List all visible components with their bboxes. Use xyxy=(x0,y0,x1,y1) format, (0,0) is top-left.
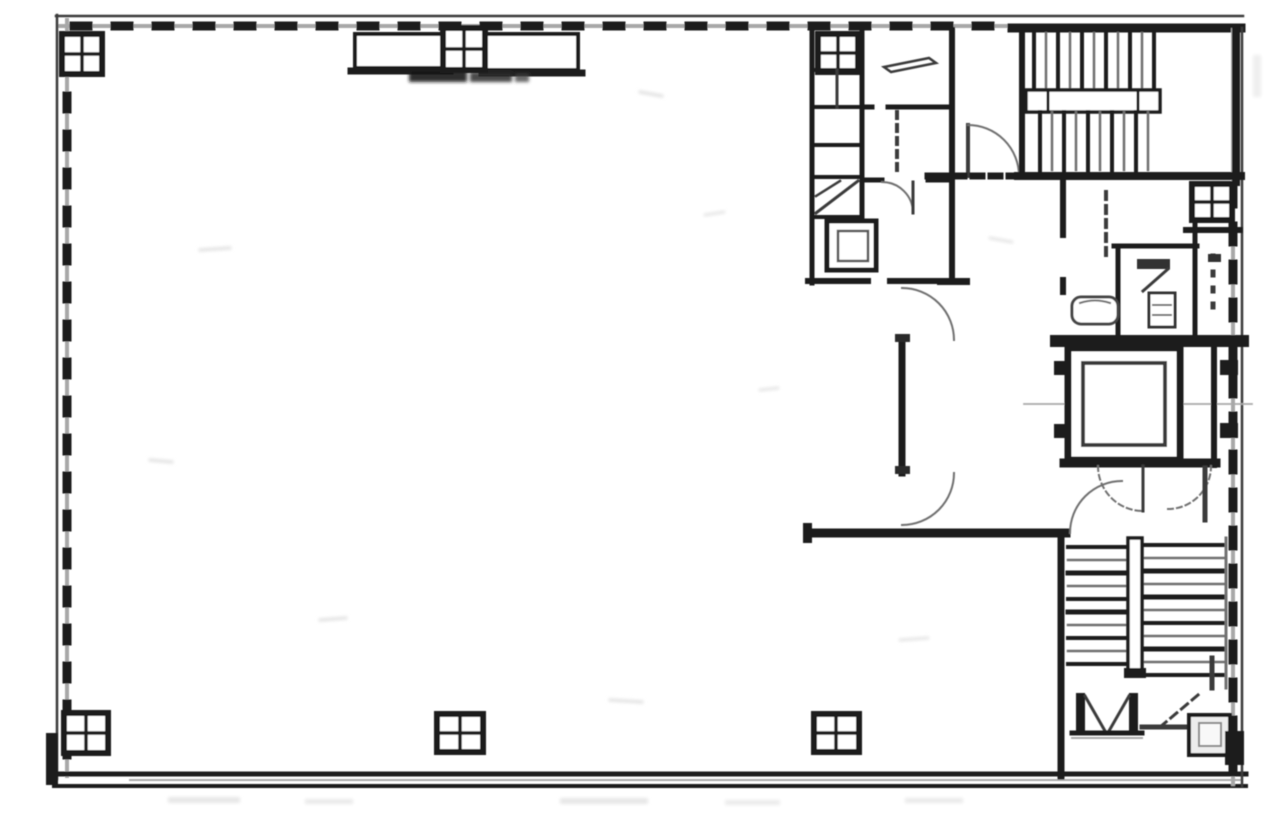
lobby-door-arc-left xyxy=(1098,466,1143,511)
elevator xyxy=(1024,348,1252,465)
restroom-door-arc xyxy=(882,182,913,213)
column-top-left xyxy=(62,34,102,74)
exterior-wall-left xyxy=(46,15,67,785)
wall-corner-cap xyxy=(46,733,58,785)
stair-divider xyxy=(1128,538,1142,672)
door-arc xyxy=(968,125,1019,176)
column-bottom-left xyxy=(64,713,108,753)
floor-plan-drawing xyxy=(0,0,1280,819)
corridor-wall xyxy=(895,282,967,525)
exterior-wall-right xyxy=(1233,28,1242,786)
upper-staircase xyxy=(1018,30,1241,176)
counter-fixture xyxy=(884,58,936,72)
upper-stair-treads xyxy=(1034,33,1154,90)
lobby-doors xyxy=(1070,466,1211,533)
upper-stair-treads-lower xyxy=(1040,112,1148,170)
corridor-south-wall xyxy=(803,523,1066,543)
wc-fixture xyxy=(1137,259,1175,327)
column-bottom-center-right xyxy=(814,714,859,752)
double-swing-door xyxy=(1072,693,1142,738)
exterior-wall-bottom xyxy=(54,774,1246,786)
floor-plan-page xyxy=(0,0,1280,819)
column-right-middle xyxy=(1192,184,1232,220)
stair-landing-rail xyxy=(1026,90,1160,112)
corridor-door-arc-upper xyxy=(902,288,954,340)
column-restroom xyxy=(818,34,858,72)
column-bottom-center-left xyxy=(437,714,483,752)
lower-stair-treads-left xyxy=(1068,547,1126,664)
corner-box xyxy=(1189,715,1230,755)
structural-columns xyxy=(62,28,1232,753)
shaft-hatch xyxy=(816,181,858,213)
column-top-center xyxy=(443,28,485,70)
exterior-wall-top xyxy=(56,16,1243,28)
corridor-door-arc-lower xyxy=(902,473,954,525)
wall-pier xyxy=(1225,731,1244,765)
stair-door-arc xyxy=(1070,481,1122,533)
stair-entry-door xyxy=(928,30,1020,176)
